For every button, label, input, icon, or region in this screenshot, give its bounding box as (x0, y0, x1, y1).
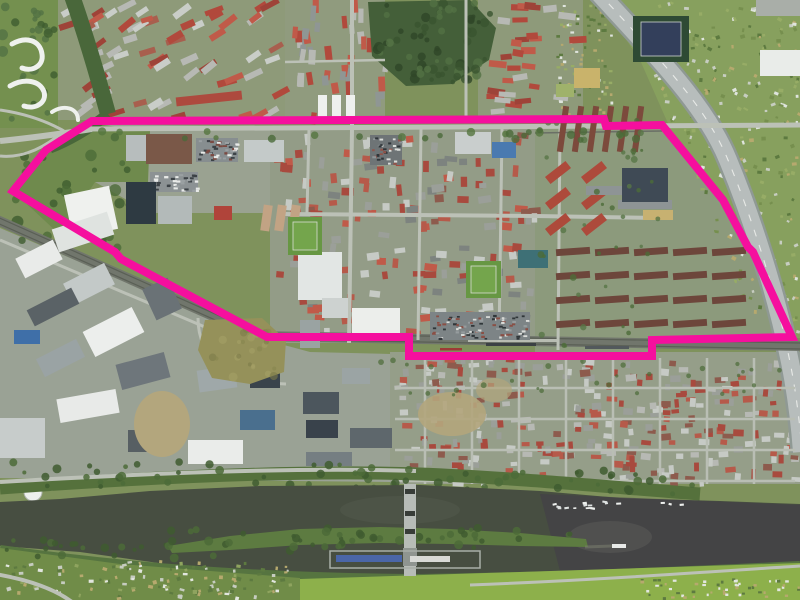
parked-cars (458, 327, 461, 329)
forest-canopy (467, 27, 477, 37)
parked-cars (223, 145, 227, 147)
allotment-huts (243, 587, 246, 590)
houses-south (438, 451, 445, 458)
bank-trees (569, 478, 573, 482)
allotment-huts (777, 580, 780, 583)
allotment-parcels-west (572, 48, 574, 51)
allotment-huts (284, 571, 288, 574)
allotment-parcels (719, 102, 723, 105)
parked-cars (198, 158, 201, 160)
brownfield-mottling (236, 354, 241, 359)
houses-south-cross (497, 432, 502, 439)
allotment-parcels-west (589, 32, 591, 35)
bank-trees (176, 470, 181, 475)
allotment-parcels-west (598, 59, 600, 62)
allotment-parcels (795, 316, 798, 319)
bank-trees (134, 461, 141, 468)
parked-cars (393, 163, 396, 165)
forest-canopy (440, 72, 445, 77)
allotment-huts (23, 583, 27, 587)
industrial-hall (350, 428, 392, 448)
houses-south-cross (584, 379, 589, 387)
street-trees (616, 131, 623, 138)
island-trees (447, 531, 454, 538)
estate-greenery (627, 184, 632, 189)
bank-trees (252, 479, 259, 486)
train (440, 348, 462, 351)
allotment-huts (58, 566, 63, 570)
allotment-huts (62, 569, 64, 573)
parked-cars (199, 140, 202, 142)
parked-cars (486, 316, 490, 318)
allotment-huts (703, 580, 706, 583)
bank-trees (600, 467, 608, 475)
island-trees (188, 528, 194, 534)
houses-center (405, 216, 416, 223)
row-houses-northeast (502, 78, 513, 84)
row-houses-north (322, 75, 329, 85)
allotment-parcels (754, 310, 757, 314)
parked-cars (452, 318, 456, 320)
parked-cars (234, 148, 238, 150)
street-trees (506, 130, 514, 138)
allotment-huts (783, 584, 786, 587)
forest-canopy (450, 80, 455, 85)
houses-south (577, 413, 585, 418)
parked-cars (187, 179, 190, 181)
houses-south (637, 406, 645, 413)
street-trees-south (405, 363, 409, 367)
houses-center-cross (527, 288, 534, 296)
houses-south (603, 433, 613, 439)
houses-south (724, 410, 731, 416)
parked-cars (492, 324, 496, 326)
houses-center-cross (322, 181, 328, 191)
parked-cars (522, 315, 525, 317)
estate-greenery (625, 155, 630, 160)
bank-trees (357, 468, 366, 477)
south-bank-trees (11, 538, 15, 542)
houses-south-cross (629, 456, 634, 463)
bank-trees (659, 475, 667, 483)
bank-trees (311, 463, 316, 468)
allotment-huts (129, 568, 131, 570)
street-trees (567, 131, 575, 139)
parked-cars (372, 156, 376, 158)
forest-canopy (471, 0, 478, 7)
allotment-parcels (764, 46, 766, 49)
allotment-parcels-west (560, 56, 563, 59)
allotment-huts (673, 580, 677, 582)
street-trees (467, 128, 475, 136)
row-houses-north (375, 92, 381, 107)
houses-center-cross (476, 158, 481, 167)
bank-trees (9, 458, 17, 466)
bank-trees (624, 485, 632, 493)
houses-south (718, 424, 726, 431)
parked-cars (456, 331, 459, 333)
wedge-trees (50, 200, 58, 208)
houses-south-cross (694, 463, 699, 472)
allotment-parcels (792, 162, 797, 166)
bank-trees (316, 470, 325, 479)
houses-south (691, 452, 699, 457)
allotment-parcels-west (597, 29, 600, 31)
parked-cars (512, 321, 516, 323)
allotment-huts (131, 578, 134, 580)
south-bank-trees (139, 544, 144, 549)
street-trees (182, 135, 188, 141)
allotment-parcels (699, 12, 702, 15)
brownfield-mottling (241, 340, 245, 344)
allotment-huts (288, 583, 292, 586)
allotment-huts (131, 587, 136, 590)
allotment-parcels (779, 241, 782, 245)
allotment-huts (763, 591, 765, 594)
parked-cars (231, 157, 235, 159)
allotment-parcels (762, 157, 766, 161)
houses-center (328, 191, 341, 199)
bank-trees (670, 491, 675, 496)
estate-greenery (630, 304, 634, 308)
moored-boats (680, 503, 684, 506)
parked-cars (469, 331, 472, 333)
estate-greenery (580, 324, 586, 330)
island-trees (335, 543, 341, 549)
estate-greenery (637, 130, 643, 136)
houses-south (725, 467, 736, 473)
park-trees (30, 28, 35, 33)
allotment-parcels-west (559, 54, 563, 56)
parked-cars (380, 153, 383, 155)
allotment-parcels (748, 128, 751, 131)
allotment-parcels (765, 110, 768, 112)
allotment-huts (707, 594, 709, 597)
parked-cars (457, 316, 460, 318)
parked-cars (442, 323, 446, 325)
island-trees (454, 540, 463, 549)
allotment-parcels-west (593, 49, 597, 51)
island-trees (167, 527, 175, 535)
houses-south (650, 402, 657, 409)
houses-center (421, 307, 430, 314)
parked-cars (461, 331, 465, 333)
houses-south (487, 370, 497, 377)
street-trees-south (481, 382, 487, 388)
houses-south (772, 471, 782, 477)
houses-south (623, 408, 633, 415)
parked-cars (510, 325, 513, 327)
south-bank-trees (58, 551, 66, 559)
parked-cars (500, 334, 504, 336)
houses-south-cross (453, 439, 458, 447)
parked-cars (235, 143, 238, 145)
wedge-trees (18, 237, 25, 244)
forest-canopy (455, 61, 465, 71)
train (486, 343, 536, 346)
row-houses-northeast (569, 36, 587, 44)
allotment-huts (739, 594, 742, 597)
train (585, 346, 629, 349)
houses-south (522, 452, 532, 457)
houses-south (731, 391, 738, 397)
forest-canopy (483, 57, 487, 61)
south-bank-trees (101, 543, 110, 552)
parked-cars (522, 330, 526, 332)
houses-south-cross (771, 456, 776, 463)
brownfield-mottling (229, 372, 238, 381)
street-trees (311, 131, 319, 139)
allotment-huts (710, 591, 712, 593)
blue-roof-building (492, 142, 516, 158)
street-trees-south (425, 391, 430, 396)
forest-canopy (424, 66, 431, 73)
parked-cars (207, 140, 210, 142)
allotment-parcels (795, 156, 798, 159)
parked-cars (456, 328, 459, 330)
screenshot-root (0, 0, 800, 600)
parked-cars (372, 149, 375, 151)
dark-store (126, 182, 156, 224)
industrial-hall (306, 420, 338, 438)
houses-south (650, 413, 659, 418)
allotment-parcels-west (605, 86, 608, 89)
parked-cars (210, 141, 214, 143)
parked-cars (478, 318, 481, 320)
allotment-huts (653, 579, 657, 581)
parked-cars (443, 329, 446, 331)
allotment-huts (184, 568, 187, 571)
island-trees (567, 531, 572, 536)
parked-cars (154, 180, 158, 182)
row-houses-northeast (507, 65, 520, 70)
moored-boats (588, 505, 592, 507)
street-trees (213, 135, 218, 140)
bank-trees (633, 472, 638, 477)
forest-canopy (429, 17, 437, 25)
blue-industrial-hall (14, 330, 40, 344)
parked-cars (502, 327, 506, 329)
houses-center-cross (461, 177, 468, 187)
allotment-parcels (776, 39, 781, 43)
south-bank-trees (133, 548, 137, 552)
wedge-trees (114, 198, 124, 208)
allotment-huts (17, 591, 21, 595)
houses-south (591, 455, 601, 460)
allotment-huts (275, 566, 278, 570)
allotment-huts (676, 592, 680, 594)
allotment-parcels-west (604, 65, 607, 68)
brownfield-mottling (214, 357, 218, 361)
houses-south (563, 452, 574, 459)
parked-cars (212, 146, 216, 148)
allotment-parcels-west (587, 25, 590, 27)
allotment-parcels (692, 37, 695, 41)
parked-cars (175, 176, 178, 178)
bank-trees (503, 474, 509, 480)
island-trees (321, 543, 328, 550)
estate-greenery (626, 331, 631, 336)
island-trees (337, 532, 343, 538)
houses-south (722, 434, 733, 439)
allotment-huts (275, 589, 279, 592)
parked-cars (447, 321, 450, 323)
parked-cars (485, 338, 488, 340)
car-park-south (430, 312, 530, 340)
brownfield-mottling (237, 340, 241, 344)
houses-center (459, 159, 467, 166)
bank-trees (98, 484, 103, 489)
allotment-huts (58, 573, 61, 576)
street-trees-south (454, 388, 459, 393)
forest-canopy (429, 77, 434, 82)
allotment-parcels-west (598, 39, 600, 41)
allotment-huts (683, 596, 686, 599)
lock-gate (405, 529, 415, 534)
south-bank-trees (111, 553, 117, 559)
allotment-huts (272, 574, 275, 577)
island-trees (513, 527, 521, 535)
houses-center-cross (431, 142, 438, 153)
allotment-parcels-west (575, 51, 578, 53)
parked-cars (437, 324, 441, 326)
houses-south (533, 364, 543, 370)
allotment-parcels (751, 37, 756, 40)
park-trees (33, 10, 41, 18)
allotment-parcels (723, 74, 727, 77)
allotment-parcels (691, 47, 695, 50)
wedge-trees (119, 160, 125, 166)
barge (336, 555, 402, 562)
parked-cars (192, 190, 196, 192)
houses-south (681, 429, 689, 434)
allotment-parcels-west (579, 63, 582, 66)
houses-south (720, 439, 727, 445)
south-bank-trees (289, 542, 298, 551)
parked-cars (501, 322, 504, 324)
allotment-parcels-west (561, 44, 563, 46)
parked-cars (463, 326, 466, 328)
forest-canopy (443, 66, 448, 71)
bank-trees (83, 474, 89, 480)
houses-south (772, 411, 778, 417)
parked-cars (196, 188, 200, 190)
street-trees (578, 137, 584, 143)
estate-greenery (614, 245, 618, 249)
allotment-huts (785, 595, 788, 597)
allotment-huts (57, 569, 62, 572)
bank-trees (22, 470, 26, 474)
parked-cars (227, 154, 231, 156)
allotment-parcels-west (570, 31, 574, 33)
houses-south (680, 391, 687, 396)
allotment-huts (160, 578, 163, 581)
wedge-trees (85, 150, 96, 161)
parked-cars (437, 322, 440, 324)
sports-pitch (641, 22, 681, 56)
estate-greenery (594, 189, 600, 195)
houses-south (759, 410, 768, 417)
houses-south (641, 453, 651, 461)
houses-center (437, 159, 447, 167)
row-houses-northeast (512, 17, 527, 22)
allotment-parcels (780, 175, 783, 178)
island-trees (240, 531, 246, 537)
allotment-parcels (665, 100, 670, 104)
street-trees-south (539, 388, 544, 393)
barge-white (410, 556, 450, 562)
allotment-huts (765, 596, 768, 598)
forest-canopy (418, 33, 424, 39)
allotment-huts (80, 574, 84, 577)
allotment-parcels (784, 136, 788, 139)
bank-trees (494, 477, 503, 486)
allotment-huts (219, 575, 223, 579)
forest-canopy (477, 20, 481, 24)
houses-center-cross (392, 258, 398, 268)
parked-cars (173, 180, 177, 182)
allotment-parcels-west (609, 82, 612, 84)
allotment-parcels-west (610, 35, 613, 37)
allotment-parcels (748, 82, 751, 85)
row-houses-north (297, 75, 303, 86)
houses-south (399, 396, 406, 400)
allotment-huts (734, 580, 738, 583)
allotment-huts (61, 581, 65, 584)
wedge-trees (124, 166, 131, 173)
park-trees (9, 116, 15, 122)
allotment-huts (192, 566, 195, 569)
street-trees-south (378, 359, 384, 365)
parked-cars (156, 184, 160, 186)
houses-south-cross (543, 376, 548, 385)
forest-canopy (417, 70, 425, 78)
allotment-huts (785, 580, 789, 582)
forest-canopy (437, 14, 443, 20)
estate-greenery (597, 251, 601, 255)
island-trees (356, 530, 364, 538)
allotment-parcels (700, 188, 704, 190)
bank-trees (87, 463, 92, 468)
island-trees (473, 537, 478, 542)
estate-greenery (582, 223, 586, 227)
houses-center (295, 150, 303, 158)
industrial-hall (322, 298, 348, 318)
parked-cars (377, 159, 381, 161)
lock-gate (405, 489, 415, 494)
row-houses-north (292, 26, 298, 38)
bank-trees (215, 466, 224, 475)
allotment-parcels (705, 91, 708, 95)
houses-south (661, 401, 670, 407)
houses-south-cross (626, 361, 631, 368)
forest-canopy (474, 6, 478, 10)
estate-greenery (650, 180, 654, 184)
houses-south (522, 442, 530, 446)
parked-cars (473, 319, 477, 321)
houses-south (763, 464, 772, 471)
estate-greenery (655, 216, 660, 221)
allotment-parcels (686, 131, 690, 135)
parked-cars (453, 323, 457, 325)
houses-south (525, 371, 532, 376)
houses-south (641, 440, 651, 446)
parked-cars (379, 139, 383, 141)
parked-cars (499, 336, 502, 338)
houses-south-cross (708, 458, 713, 467)
allotment-parcels-west (603, 93, 606, 96)
parked-cars (524, 325, 528, 327)
